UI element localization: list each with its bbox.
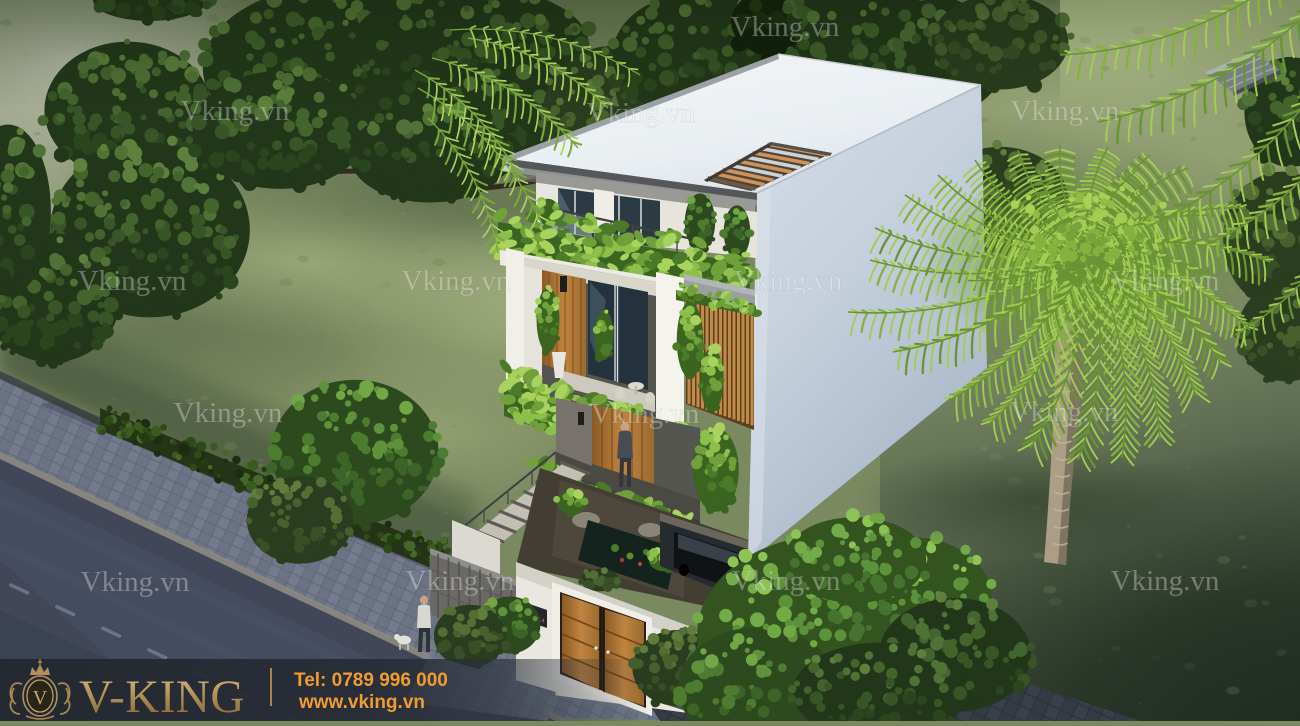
svg-text:Vking.vn: Vking.vn xyxy=(78,265,187,297)
svg-text:Vking.vn: Vking.vn xyxy=(174,397,283,429)
svg-text:Vking.vn: Vking.vn xyxy=(1111,565,1220,597)
svg-text:Vking.vn: Vking.vn xyxy=(1010,396,1119,428)
svg-text:Vking.vn: Vking.vn xyxy=(734,265,843,297)
svg-text:Tel: 0789 996 000: Tel: 0789 996 000 xyxy=(294,670,448,691)
svg-text:V: V xyxy=(33,687,48,709)
svg-text:Vking.vn: Vking.vn xyxy=(181,95,290,127)
svg-text:Vking.vn: Vking.vn xyxy=(732,565,841,597)
svg-text:Vking.vn: Vking.vn xyxy=(731,11,840,43)
svg-text:Vking.vn: Vking.vn xyxy=(402,265,511,297)
svg-text:Vking.vn: Vking.vn xyxy=(81,566,190,598)
svg-text:Vking.vn: Vking.vn xyxy=(406,565,515,597)
svg-text:www.vking.vn: www.vking.vn xyxy=(298,692,425,713)
svg-text:Vking.vn: Vking.vn xyxy=(1011,95,1120,127)
svg-text:Vking.vn: Vking.vn xyxy=(591,398,700,430)
svg-text:Vking.vn: Vking.vn xyxy=(587,97,696,129)
svg-text:Vking.vn: Vking.vn xyxy=(1111,265,1220,297)
svg-text:V-KING: V-KING xyxy=(79,671,245,721)
